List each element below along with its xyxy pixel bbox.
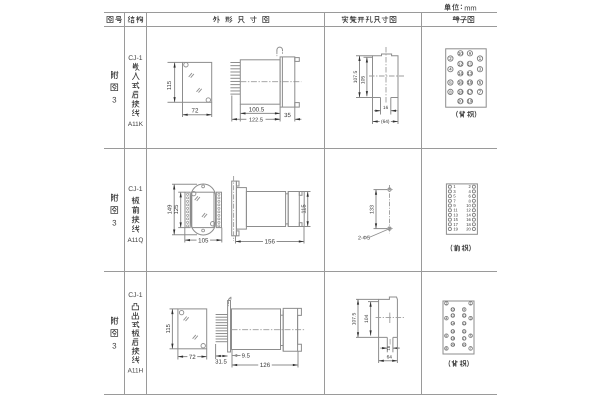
svg-text:10: 10: [451, 308, 455, 312]
svg-text:19: 19: [462, 343, 466, 347]
svg-text:126: 126: [260, 362, 271, 369]
svg-text:4: 4: [446, 316, 448, 320]
svg-text:100.5: 100.5: [249, 106, 265, 113]
svg-text:156: 156: [265, 239, 276, 246]
svg-text:9: 9: [463, 308, 465, 312]
svg-text:105: 105: [361, 76, 367, 85]
svg-text:2: 2: [446, 301, 448, 305]
svg-text:mm: mm: [464, 3, 477, 12]
svg-text:20: 20: [458, 99, 463, 104]
svg-text:3: 3: [112, 218, 117, 227]
svg-text:8: 8: [446, 347, 448, 351]
svg-text:2-Φ5: 2-Φ5: [358, 235, 370, 241]
svg-text:16: 16: [458, 80, 463, 85]
svg-text:(64): (64): [381, 119, 390, 125]
svg-text:149: 149: [166, 205, 173, 215]
svg-text:3: 3: [112, 96, 117, 105]
svg-text:CJ-1: CJ-1: [128, 55, 143, 62]
svg-text:13: 13: [462, 321, 466, 325]
svg-text:12: 12: [451, 314, 455, 318]
svg-text:A11K: A11K: [128, 121, 144, 128]
svg-text:14: 14: [458, 71, 463, 76]
svg-text:115: 115: [167, 81, 173, 90]
svg-text:122.5: 122.5: [249, 117, 263, 123]
svg-text:12: 12: [458, 61, 463, 66]
svg-text:3: 3: [112, 341, 117, 350]
svg-text:A11H: A11H: [128, 368, 144, 375]
svg-text:14: 14: [451, 321, 455, 325]
svg-text:5: 5: [470, 334, 472, 338]
svg-text:15: 15: [462, 330, 466, 334]
svg-text:64: 64: [387, 355, 393, 361]
svg-text:7: 7: [470, 347, 472, 351]
svg-text:17: 17: [468, 89, 473, 94]
svg-text:16: 16: [383, 105, 389, 110]
svg-text:104: 104: [364, 314, 370, 323]
svg-text:20: 20: [451, 343, 455, 347]
svg-text:115: 115: [166, 324, 172, 333]
svg-text:16: 16: [451, 330, 455, 334]
svg-text:19: 19: [468, 99, 473, 104]
svg-text:107.5: 107.5: [352, 313, 358, 326]
svg-text:133: 133: [369, 205, 375, 214]
svg-text:13: 13: [468, 71, 473, 76]
svg-text:35: 35: [284, 112, 291, 119]
svg-text:18: 18: [458, 89, 463, 94]
svg-text:6: 6: [446, 334, 448, 338]
svg-text:125: 125: [173, 205, 180, 215]
svg-text:105: 105: [198, 237, 209, 244]
svg-text:11: 11: [463, 314, 467, 318]
svg-text:72: 72: [192, 107, 199, 114]
svg-text:115: 115: [301, 204, 307, 213]
svg-text:17: 17: [462, 337, 466, 341]
svg-text:3: 3: [470, 316, 472, 320]
svg-text:CJ-1: CJ-1: [128, 186, 143, 193]
svg-text:72: 72: [189, 354, 196, 361]
svg-text:15: 15: [468, 80, 473, 85]
svg-text:20: 20: [466, 227, 471, 232]
svg-text:107.5: 107.5: [353, 71, 359, 84]
svg-text:31.5: 31.5: [215, 358, 227, 365]
svg-text:1: 1: [470, 301, 472, 305]
svg-text:CJ-1: CJ-1: [128, 292, 143, 299]
svg-text:11: 11: [468, 61, 473, 66]
svg-text:19: 19: [453, 227, 458, 232]
svg-text:18: 18: [451, 337, 455, 341]
svg-text:A11Q: A11Q: [127, 237, 143, 244]
svg-text:10: 10: [458, 51, 463, 56]
svg-text:9.5: 9.5: [242, 353, 251, 360]
